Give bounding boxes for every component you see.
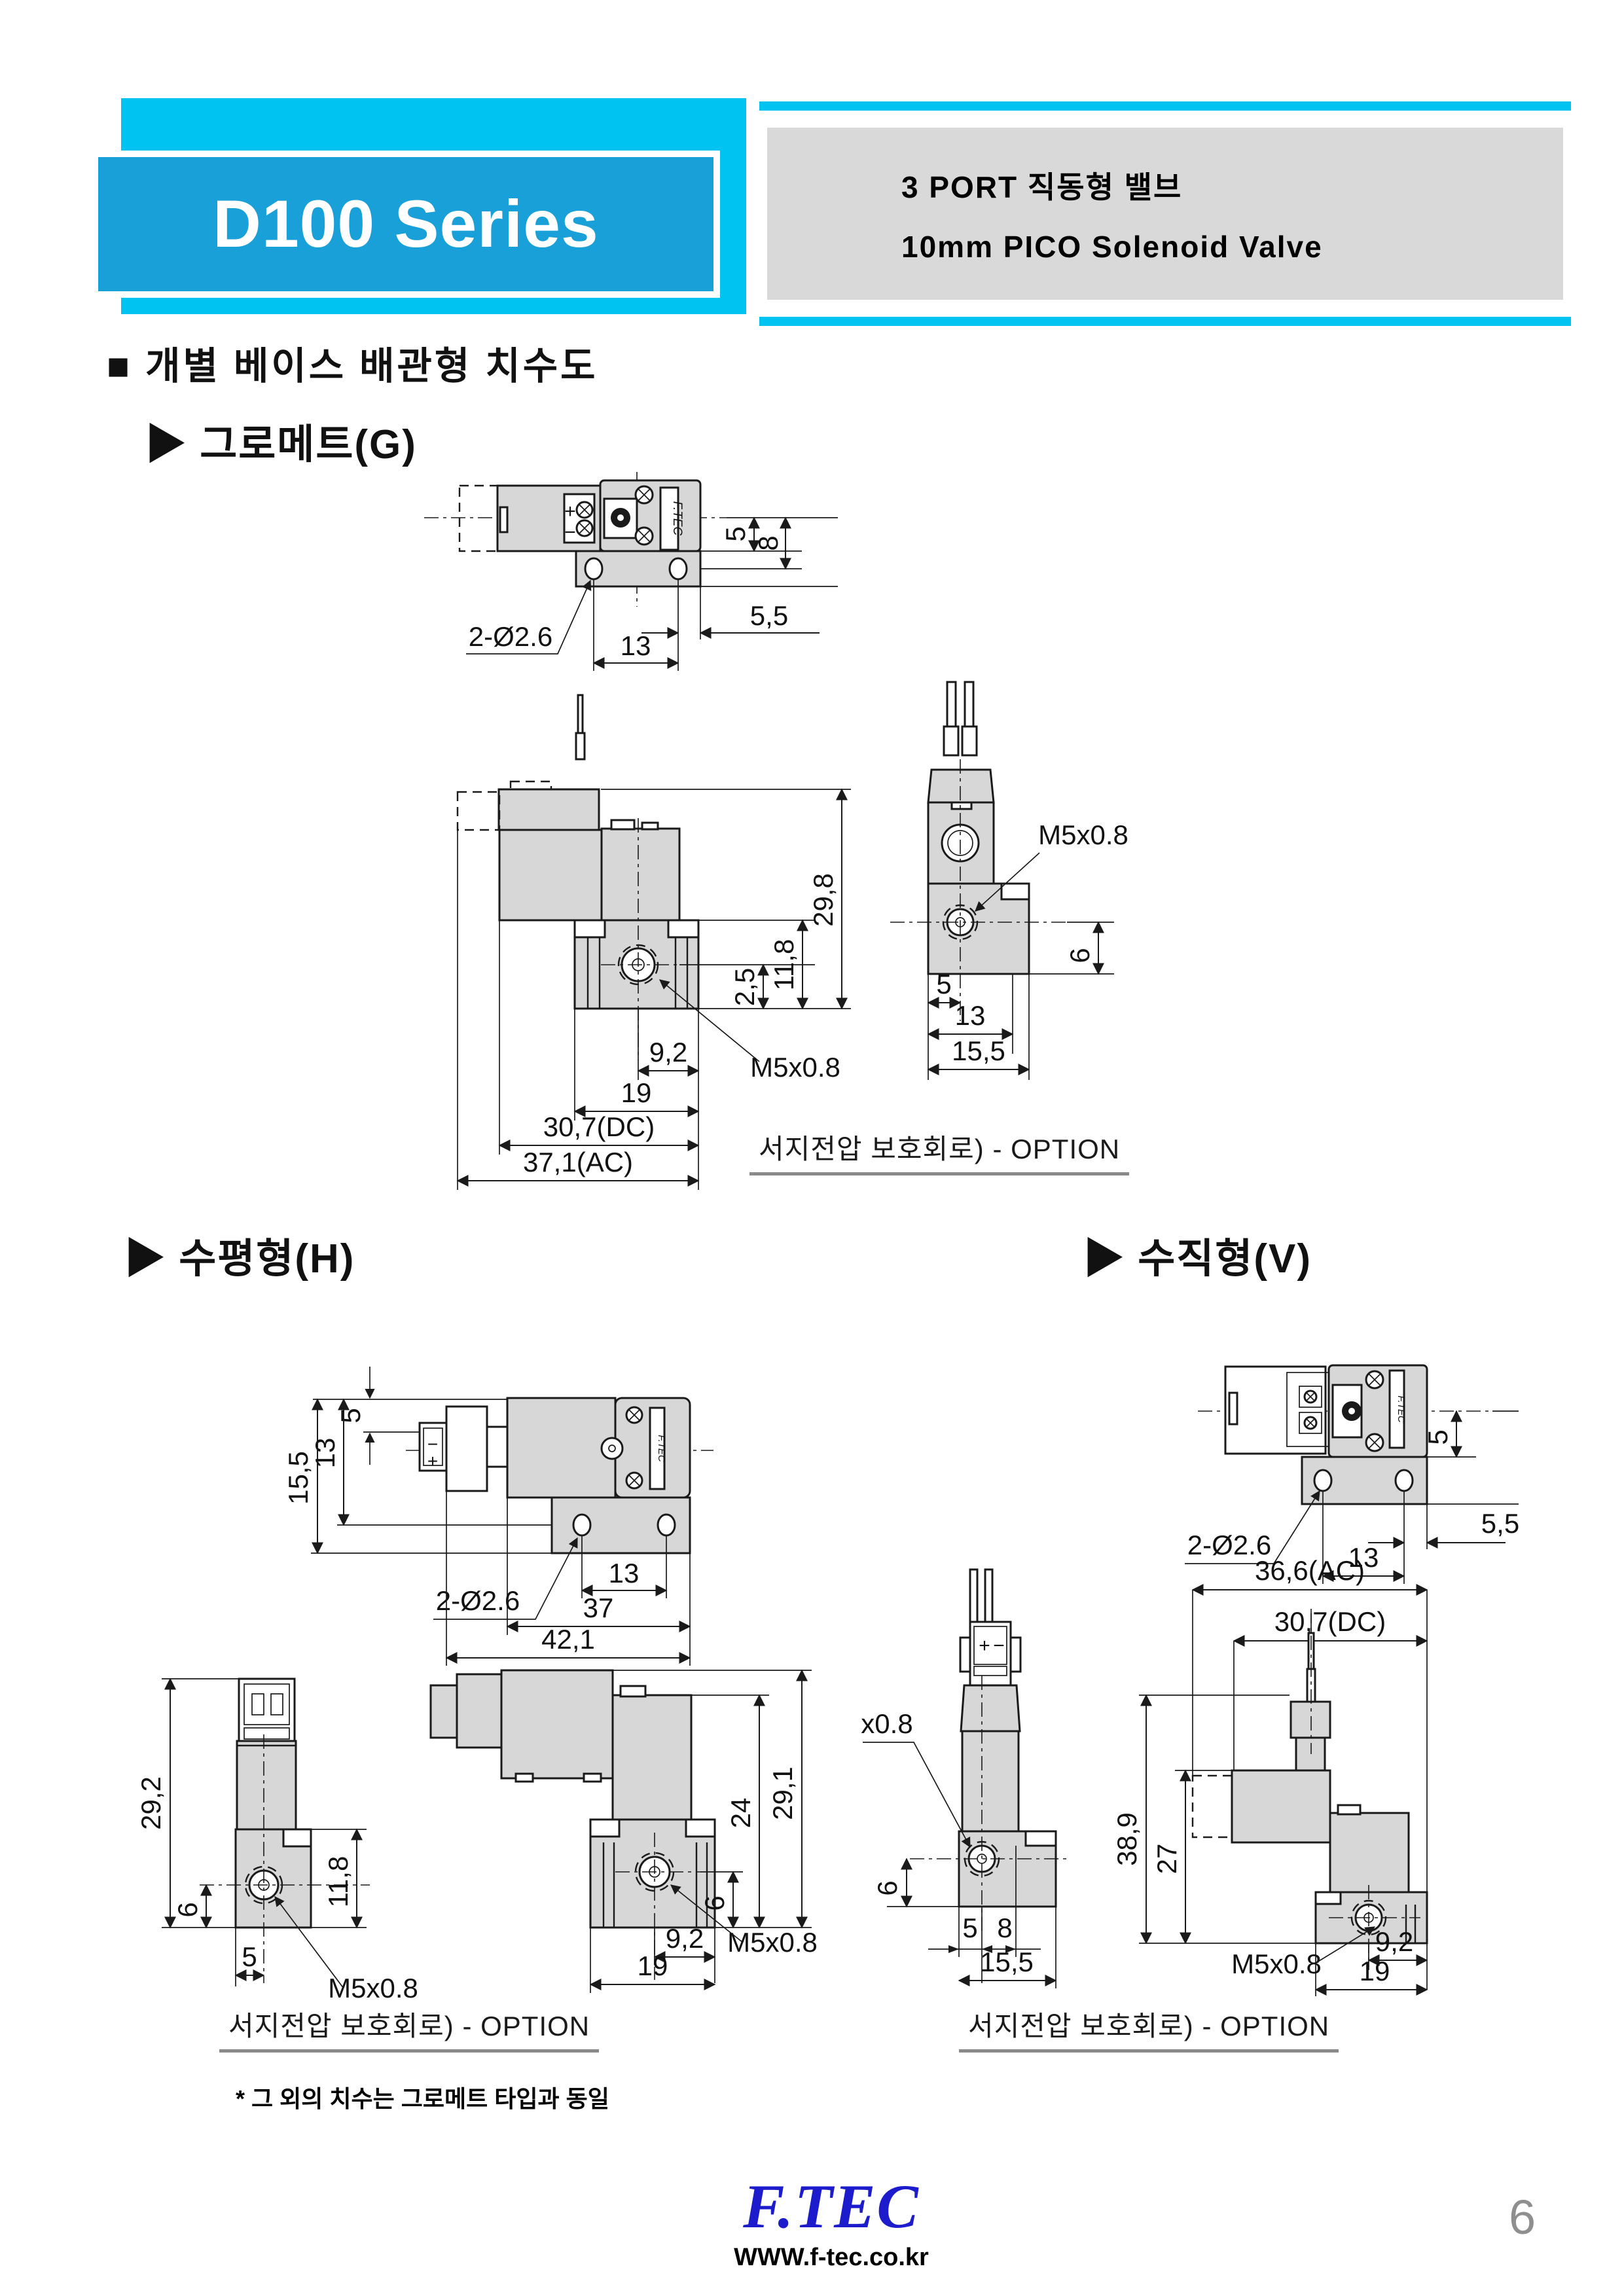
connector-housing — [1225, 1367, 1326, 1454]
dim-8: 8 — [997, 1912, 1012, 1943]
subtitle-line1: 3 PORT 직동형 밸브 — [901, 164, 1563, 207]
brand-label: F.TEC — [670, 501, 684, 536]
connector-housing — [457, 1674, 501, 1748]
dim-29-2: 29,2 — [141, 1776, 166, 1830]
dim-37-1: 37,1(AC) — [523, 1147, 633, 1177]
mounting-hole — [658, 1515, 675, 1535]
coil-body — [507, 1398, 615, 1498]
dim-pitch-13: 13 — [609, 1558, 640, 1588]
dim-11-8: 11,8 — [323, 1856, 353, 1908]
ac-coil-dashed — [1193, 1776, 1232, 1837]
subsection-vertical: ▶ 수직형(V) — [1083, 1225, 1312, 1284]
lead-wire — [985, 1570, 992, 1622]
coil-body — [501, 1670, 613, 1778]
dim-2-5: 2,5 — [729, 968, 760, 1006]
dim-19: 19 — [638, 1950, 668, 1981]
dim-19: 19 — [1360, 1956, 1390, 1986]
terminal-plus-label: + — [979, 1635, 990, 1657]
dim-thread: x0.8 — [861, 1708, 912, 1739]
dim-11-8: 11,8 — [768, 939, 799, 991]
dim-6: 6 — [1064, 948, 1095, 963]
dim-5: 5 — [335, 1408, 366, 1423]
dim-5: 5 — [1422, 1429, 1453, 1444]
coil-cap — [961, 1685, 1020, 1731]
lead-wire — [970, 1570, 977, 1622]
grommet-boot-dashed — [458, 792, 499, 830]
dim-6: 6 — [699, 1895, 730, 1910]
connector-housing — [446, 1407, 487, 1491]
dim-19: 19 — [621, 1077, 652, 1108]
caption-option-grommet: 서지전압 보호회로) - OPTION — [749, 1127, 1129, 1175]
footer-brand: F.TEC WWW.f-tec.co.kr — [687, 2174, 975, 2272]
caption-option-horizontal: 서지전압 보호회로) - OPTION — [219, 2004, 599, 2053]
product-subtitle-box: 3 PORT 직동형 밸브 10mm PICO Solenoid Valve — [759, 101, 1571, 326]
dim-13: 13 — [621, 630, 651, 661]
dim-36-6: 36,6(AC) — [1255, 1555, 1365, 1586]
valve-body — [1330, 1813, 1409, 1892]
dim-holes: 2-Ø2.6 — [469, 621, 552, 652]
coil-body — [962, 1731, 1019, 1831]
dim-30-7: 30,7(DC) — [543, 1111, 655, 1142]
figure-vertical-front-view: 36,6(AC) 30,7(DC) 38,9 27 9,2 — [1113, 1538, 1597, 1996]
terminal-minus-label: − — [564, 522, 576, 543]
coil-body — [499, 830, 602, 920]
lead-wire — [947, 682, 956, 726]
subsection-grommet: ▶ 그로메트(G) — [145, 411, 417, 470]
dim-6: 6 — [872, 1880, 903, 1895]
series-title: D100 Series — [213, 186, 598, 262]
dim-5: 5 — [936, 969, 951, 999]
dim-9-2: 9,2 — [1375, 1926, 1413, 1957]
dim-thread: M5x0.8 — [750, 1052, 840, 1083]
dim-27: 27 — [1151, 1844, 1182, 1874]
mounting-hole — [670, 558, 687, 579]
mounting-hole — [573, 1515, 590, 1535]
valve-body — [602, 829, 679, 920]
caption-option-vertical: 서지전압 보호회로) - OPTION — [959, 2004, 1339, 2053]
grommet-boot-dashed — [460, 486, 497, 551]
subtitle-line2: 10mm PICO Solenoid Valve — [901, 229, 1563, 264]
dim-5: 5 — [720, 526, 751, 541]
lead-wire — [578, 695, 583, 733]
coil-cap — [499, 789, 599, 830]
connector-housing — [239, 1679, 295, 1741]
figure-grommet-front-view: M5x0.8 29,8 11,8 2,5 9,2 19 30,7(DC) 37,… — [393, 694, 890, 1191]
dim-24: 24 — [725, 1798, 756, 1829]
ftec-logo: F.TEC — [687, 2174, 975, 2240]
footer-url: WWW.f-tec.co.kr — [687, 2244, 975, 2272]
dim-5: 5 — [962, 1912, 977, 1943]
coil-body — [237, 1741, 296, 1829]
dim-15-5: 15,5 — [283, 1451, 314, 1505]
dim-13: 13 — [955, 1000, 986, 1031]
valve-body — [613, 1695, 691, 1820]
dim-15-5: 15,5 — [952, 1035, 1005, 1066]
figure-horizontal-front-view: 29,1 24 6 9,2 19 M5x0.8 — [419, 1617, 851, 2009]
terminal-plus-label: + — [564, 501, 576, 522]
lead-wire — [965, 682, 973, 726]
figure-grommet-top-view: + − F.TEC 5 8 5,5 13 — [419, 468, 851, 684]
dim-15-5: 15,5 — [980, 1946, 1034, 1977]
dim-9-2: 9,2 — [666, 1923, 704, 1954]
dim-30-7: 30,7(DC) — [1274, 1606, 1386, 1637]
coil-cap — [1291, 1702, 1330, 1738]
brand-label: F.TEC — [656, 1435, 667, 1462]
dim-thread: M5x0.8 — [328, 1973, 418, 2003]
brand-label: F.TEC — [1396, 1395, 1407, 1423]
dim-29-1: 29,1 — [767, 1767, 798, 1820]
datasheet-page: D100 Series 3 PORT 직동형 밸브 10mm PICO Sole… — [0, 0, 1624, 2296]
mounting-hole — [1396, 1470, 1413, 1491]
dim-6: 6 — [172, 1902, 203, 1917]
mounting-hole — [585, 558, 602, 579]
dim-thread: M5x0.8 — [1038, 819, 1128, 850]
dim-5: 5 — [242, 1941, 257, 1972]
figure-horizontal-side-view: 29,2 6 11,8 5 M5x0.8 — [141, 1630, 461, 2009]
series-title-box: D100 Series — [92, 151, 720, 298]
dim-8: 8 — [753, 535, 784, 550]
coil-body — [1232, 1770, 1330, 1842]
dim-9-2: 9,2 — [649, 1037, 687, 1067]
figure-grommet-side-view: M5x0.8 6 5 13 15,5 — [871, 668, 1296, 1100]
section-title: ■ 개별 베이스 배관형 치수도 — [107, 335, 598, 390]
terminal-plus-label: + — [427, 1451, 438, 1471]
page-number: 6 — [1509, 2189, 1536, 2245]
mounting-hole — [1314, 1470, 1331, 1491]
dim-38-9: 38,9 — [1113, 1812, 1142, 1866]
subsection-horizontal: ▶ 수평형(H) — [124, 1225, 355, 1284]
series-banner: D100 Series — [92, 98, 746, 314]
note-other-dims: * 그 외의 치수는 그로메트 타입과 동일 — [236, 2080, 609, 2114]
dim-thread: M5x0.8 — [1231, 1948, 1322, 1979]
dim-5-5: 5,5 — [1481, 1508, 1519, 1539]
connector-plug — [431, 1685, 457, 1738]
dim-29-8: 29,8 — [808, 873, 839, 927]
dim-thread: M5x0.8 — [727, 1927, 818, 1958]
product-subtitle-panel: 3 PORT 직동형 밸브 10mm PICO Solenoid Valve — [767, 128, 1563, 300]
terminal-minus-label: − — [993, 1635, 1005, 1657]
dim-13: 13 — [310, 1438, 340, 1469]
coil-cap — [928, 770, 994, 802]
dim-5-5: 5,5 — [750, 600, 788, 631]
